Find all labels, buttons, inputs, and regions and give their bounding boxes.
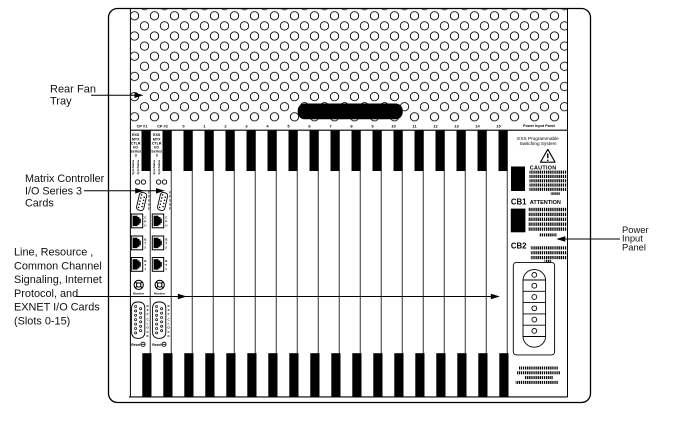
svg-text:12: 12 bbox=[433, 124, 438, 129]
svg-text:U: U bbox=[144, 224, 146, 228]
svg-text:15: 15 bbox=[496, 124, 501, 129]
svg-text:Matrix Controller: Matrix Controller bbox=[25, 173, 105, 185]
svg-text:SyncStatus: SyncStatus bbox=[136, 159, 140, 174]
svg-text:I/O Series 3: I/O Series 3 bbox=[25, 185, 82, 197]
svg-text:SyncStatus: SyncStatus bbox=[157, 159, 161, 174]
svg-text:Tray: Tray bbox=[50, 96, 72, 108]
svg-text:F: F bbox=[168, 312, 170, 316]
svg-text:14: 14 bbox=[475, 124, 480, 129]
svg-text:Line, Resource ,: Line, Resource , bbox=[14, 247, 93, 259]
svg-text:3: 3 bbox=[135, 153, 137, 157]
svg-text:Power Input Panel: Power Input Panel bbox=[523, 124, 555, 128]
svg-text:Rear: Rear bbox=[50, 84, 74, 96]
svg-text:3: 3 bbox=[156, 153, 158, 157]
svg-text:(Slots 0-15): (Slots 0-15) bbox=[14, 316, 70, 328]
svg-text:CP #1: CP #1 bbox=[137, 124, 149, 129]
svg-text:Fan: Fan bbox=[77, 84, 96, 96]
svg-text:Reset: Reset bbox=[152, 343, 162, 347]
svg-text:CP #2: CP #2 bbox=[157, 124, 169, 129]
svg-text:EXNET I/O Cards: EXNET I/O Cards bbox=[14, 302, 100, 314]
svg-text:E: E bbox=[148, 207, 150, 211]
svg-text:SyncStatus: SyncStatus bbox=[131, 159, 135, 174]
svg-text:SyncStatus: SyncStatus bbox=[152, 159, 156, 174]
svg-text:Panel: Panel bbox=[622, 241, 646, 252]
svg-text:10: 10 bbox=[391, 124, 396, 129]
svg-text:CB1: CB1 bbox=[511, 197, 527, 206]
svg-text:Switching System: Switching System bbox=[520, 141, 557, 146]
svg-text:U: U bbox=[165, 224, 167, 228]
svg-text:Monitor: Monitor bbox=[154, 292, 166, 296]
svg-text:Protocol, and: Protocol, and bbox=[14, 288, 78, 300]
svg-text:13: 13 bbox=[454, 124, 459, 129]
svg-text:Signaling, Internet: Signaling, Internet bbox=[14, 274, 102, 286]
svg-text:Common Channel: Common Channel bbox=[14, 260, 102, 272]
svg-text:Monitor: Monitor bbox=[133, 292, 145, 296]
svg-text:Cards: Cards bbox=[25, 198, 54, 210]
svg-text:E: E bbox=[169, 207, 171, 211]
svg-text:Reset: Reset bbox=[131, 343, 141, 347]
svg-text:ATTENTION: ATTENTION bbox=[530, 200, 561, 206]
svg-text:F: F bbox=[147, 312, 149, 316]
svg-text:CB2: CB2 bbox=[511, 241, 527, 250]
